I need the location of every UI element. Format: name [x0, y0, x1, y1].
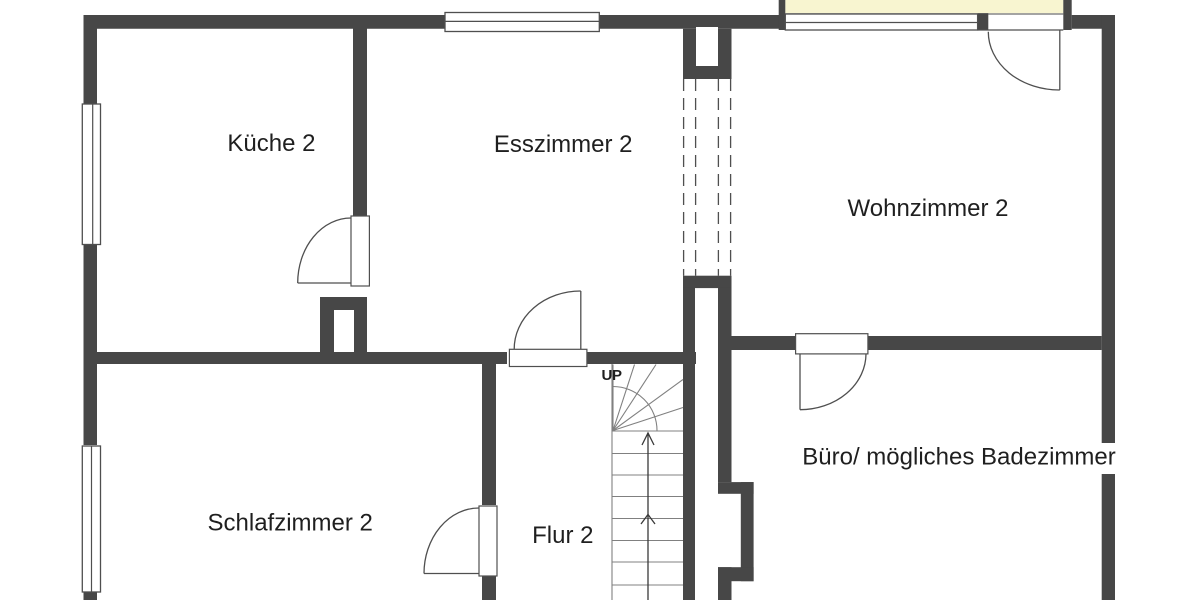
svg-text:Küche 2: Küche 2: [227, 130, 315, 157]
svg-text:Esszimmer 2: Esszimmer 2: [494, 131, 633, 158]
svg-text:Büro/ mögliches Badezimmer: Büro/ mögliches Badezimmer: [802, 444, 1115, 471]
svg-text:Schlafzimmer 2: Schlafzimmer 2: [208, 509, 373, 536]
svg-text:UP: UP: [602, 367, 623, 384]
svg-text:Flur 2: Flur 2: [532, 522, 593, 549]
svg-text:Wohnzimmer 2: Wohnzimmer 2: [848, 195, 1009, 222]
